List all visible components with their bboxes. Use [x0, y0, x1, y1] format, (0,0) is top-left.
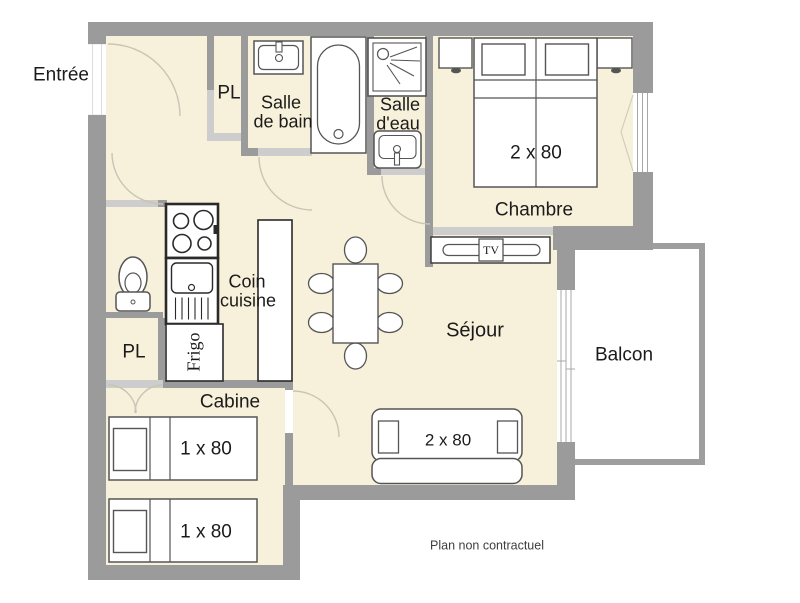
label-pl-haut: PL — [217, 84, 240, 103]
chambre-furniture — [439, 38, 632, 187]
shower — [368, 38, 426, 96]
label-balcon: Balcon — [595, 346, 653, 365]
wc-door-arc — [112, 153, 163, 204]
sdb-door-arc — [259, 157, 312, 210]
label-cabine-bed1-size: 1 x 80 — [180, 440, 232, 459]
bathroom-sink — [254, 41, 303, 74]
label-chambre: Chambre — [495, 201, 573, 220]
label-tv: TV — [483, 244, 499, 256]
dining-set — [309, 237, 403, 369]
nightstand-right-knob — [611, 68, 621, 74]
nightstand-right — [597, 38, 632, 68]
label-sde-line1: Salle — [380, 96, 420, 115]
label-pl-bas: PL — [122, 343, 145, 362]
apartment-floor-plan: Entrée PL Salle de bain Salle d'eau 2 x … — [0, 0, 800, 603]
sofa-armrest-left — [379, 421, 399, 453]
chair-top — [345, 237, 367, 263]
kitchen-sink — [166, 258, 218, 324]
chair-right-1 — [377, 274, 403, 294]
cabine-side-door-arc — [293, 391, 339, 437]
label-frigo: Frigo — [185, 332, 204, 371]
label-plan-note: Plan non contractuel — [430, 537, 544, 556]
entrance-door-arc — [108, 44, 180, 116]
nightstand-left — [439, 38, 472, 68]
dining-table — [333, 264, 378, 343]
chair-left-2 — [309, 313, 335, 333]
pillow-right — [546, 44, 589, 75]
label-sde-line2: d'eau — [376, 115, 419, 134]
nightstand-left-knob — [451, 68, 461, 74]
plan-drawing-layer — [0, 0, 800, 603]
bathtub — [311, 37, 366, 153]
sejour-window-panes — [557, 290, 575, 442]
entrance-frame — [88, 44, 106, 116]
chair-bottom — [345, 343, 367, 369]
sofa-armrest-right — [498, 421, 518, 453]
single-bed-2-pillow — [114, 511, 147, 553]
label-cabine-bed2-size: 1 x 80 — [180, 523, 232, 542]
sde-door-arc — [382, 176, 430, 224]
label-cabine: Cabine — [200, 393, 260, 412]
label-coin-cuisine-line1: Coin — [228, 273, 265, 292]
label-coin-cuisine-line2: cuisine — [220, 292, 276, 311]
single-bed-1-pillow — [114, 429, 147, 471]
chair-right-2 — [377, 313, 403, 333]
pillow-left — [482, 44, 525, 75]
sofa-seat — [372, 459, 522, 484]
label-sdb-line2: de bain — [253, 113, 312, 132]
label-sdb-line1: Salle — [261, 94, 301, 113]
label-sejour: Séjour — [446, 322, 504, 341]
stove — [166, 204, 218, 258]
label-chambre-bed-size: 2 x 80 — [510, 144, 562, 163]
toilet — [116, 257, 150, 311]
cabine-double-door-arc-left — [108, 385, 136, 413]
chair-left-1 — [309, 274, 335, 294]
cabine-double-door-arc-right — [135, 385, 163, 413]
label-sofa-size: 2 x 80 — [425, 431, 471, 450]
shower-room-sink — [374, 131, 421, 168]
chambre-window-panes — [621, 93, 648, 172]
label-entree: Entrée — [33, 66, 89, 85]
